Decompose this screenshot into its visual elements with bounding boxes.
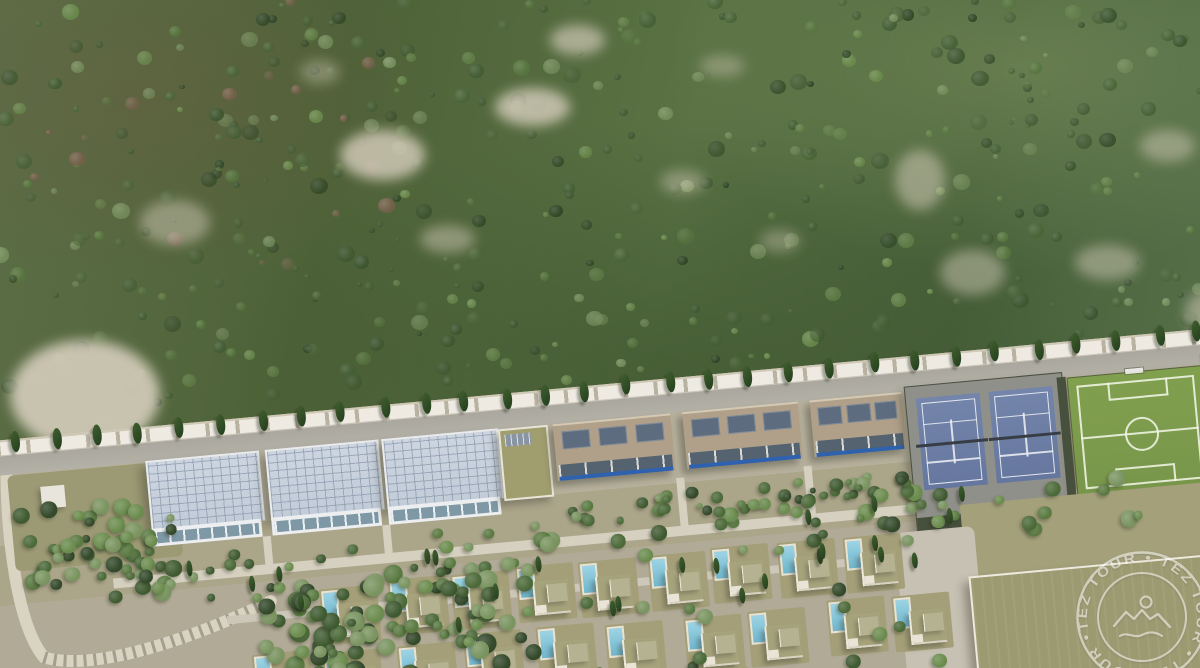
dirt-clearing xyxy=(700,55,745,77)
forest-tree xyxy=(806,148,814,155)
block-gap-shrubs-tree xyxy=(819,491,828,500)
tennis-court-1 xyxy=(916,393,988,491)
forest-tree xyxy=(215,134,222,140)
forest-tree xyxy=(467,198,474,205)
forest-tree xyxy=(1025,114,1039,126)
forest-tree xyxy=(305,28,318,39)
forest-tree xyxy=(138,287,146,295)
forest-tree xyxy=(30,173,39,181)
forest-tree xyxy=(259,260,265,265)
forest-tree xyxy=(337,246,355,262)
forest-tree xyxy=(1173,35,1187,47)
forest-tree xyxy=(941,35,958,50)
forest-tree xyxy=(970,114,988,130)
forest-tree xyxy=(443,257,449,262)
forest-tree xyxy=(248,115,259,125)
forest-tree xyxy=(125,97,139,110)
forest-tree xyxy=(579,146,592,157)
forest-tree xyxy=(1065,161,1076,171)
forest-tree xyxy=(1099,133,1115,148)
forest-tree xyxy=(1027,97,1034,103)
green-roof-service-building xyxy=(498,425,554,501)
forest-tree xyxy=(833,128,847,141)
forest-tree xyxy=(81,135,88,142)
forest-tree xyxy=(413,111,427,124)
forest-tree xyxy=(984,54,995,64)
forest-tree xyxy=(454,283,460,289)
villa-wall xyxy=(768,649,779,658)
forest-tree xyxy=(819,184,825,189)
forest-tree xyxy=(116,128,128,139)
forest-tree xyxy=(498,20,510,31)
villa-wall xyxy=(847,638,858,647)
forest-tree xyxy=(241,32,258,47)
forest-tree xyxy=(256,13,270,25)
forest-tree xyxy=(1196,88,1200,94)
forest-tree xyxy=(26,193,36,202)
forest-tree xyxy=(1012,117,1017,122)
forest-tree xyxy=(72,281,79,287)
forest-tree xyxy=(1067,130,1075,137)
forest-tree xyxy=(1161,29,1175,42)
forest-tree xyxy=(389,267,394,272)
forest-tree xyxy=(711,355,720,363)
forest-tree xyxy=(472,281,484,292)
forest-tree xyxy=(385,111,397,122)
rooftop-solar-array xyxy=(504,432,531,446)
forest-tree xyxy=(616,359,625,367)
forest-tree xyxy=(226,125,242,140)
forest-tree xyxy=(880,233,897,248)
dirt-clearing xyxy=(420,225,475,253)
forest-tree xyxy=(760,313,775,326)
villa-zone-scatter-tree xyxy=(846,654,861,668)
dirt-clearing xyxy=(940,250,1005,295)
forest-tree xyxy=(447,294,458,304)
forest-tree xyxy=(96,41,104,48)
forest-tree xyxy=(723,182,729,188)
forest-tree xyxy=(1041,89,1051,98)
forest-tree xyxy=(854,157,865,167)
garden-strip-tree xyxy=(284,562,294,571)
forest-tree xyxy=(1007,285,1022,298)
villa-wall xyxy=(913,634,924,643)
forest-tree xyxy=(543,59,560,74)
forest-tree xyxy=(968,14,976,22)
forest-tree xyxy=(1020,36,1026,42)
forest-tree xyxy=(764,353,771,359)
forest-tree xyxy=(918,6,930,17)
forest-tree xyxy=(1141,102,1156,116)
forest-tree xyxy=(69,40,83,53)
forest-tree xyxy=(304,274,310,279)
forest-tree xyxy=(1134,172,1140,178)
forest-tree xyxy=(725,132,733,139)
forest-tree xyxy=(630,203,643,215)
forest-tree xyxy=(267,366,279,377)
forest-tree xyxy=(614,248,630,262)
forest-tree xyxy=(165,350,177,360)
apartment-block-1 xyxy=(553,413,676,481)
forest-tree xyxy=(788,309,793,314)
forest-tree xyxy=(634,154,643,162)
forest-tree xyxy=(898,233,915,248)
forest-tree xyxy=(53,293,58,298)
forest-tree xyxy=(0,247,9,262)
forest-tree xyxy=(627,338,638,348)
forest-tree xyxy=(1,70,18,85)
forest-tree xyxy=(179,85,184,90)
forest-tree xyxy=(51,188,58,194)
forest-tree xyxy=(614,74,621,80)
forest-tree xyxy=(1172,273,1181,281)
forest-tree xyxy=(443,376,453,385)
forest-tree xyxy=(302,16,313,26)
forest-tree xyxy=(1090,183,1103,195)
forest-tree xyxy=(357,282,362,287)
forest-tree xyxy=(213,278,224,288)
forest-tree xyxy=(807,81,814,87)
forest-tree xyxy=(691,305,700,313)
forest-tree xyxy=(378,198,395,213)
forest-tree xyxy=(808,222,818,231)
forest-tree xyxy=(593,81,603,90)
forest-tree xyxy=(1004,12,1016,23)
forest-tree xyxy=(1100,8,1118,24)
forest-tree xyxy=(233,182,240,188)
forest-tree xyxy=(621,29,638,44)
wave-icon xyxy=(1120,632,1162,636)
forest-tree xyxy=(340,115,347,121)
forest-tree xyxy=(187,248,204,263)
forest-tree xyxy=(369,337,384,350)
villa-upper-floor xyxy=(679,571,701,591)
villa-upper-floor xyxy=(567,644,589,664)
forest-tree xyxy=(751,147,757,152)
forest-tree xyxy=(122,278,137,291)
forest-tree xyxy=(996,246,1010,259)
forest-tree xyxy=(397,0,414,11)
forest-tree xyxy=(114,238,125,248)
forest-tree xyxy=(561,375,572,385)
forest-tree xyxy=(513,60,530,76)
forest-tree xyxy=(244,350,254,359)
forest-tree xyxy=(729,357,744,370)
forest-tree xyxy=(770,80,786,94)
forest-tree xyxy=(689,317,697,325)
forest-tree xyxy=(790,146,800,155)
forest-tree xyxy=(177,107,182,112)
forest-tree xyxy=(393,195,401,202)
forest-tree xyxy=(46,130,51,135)
forest-tree xyxy=(871,153,889,169)
forest-tree xyxy=(122,180,134,191)
forest-tree xyxy=(603,145,613,154)
sun-icon xyxy=(1141,597,1152,608)
forest-tree xyxy=(376,49,385,57)
forest-tree xyxy=(366,101,378,112)
forest-tree xyxy=(825,287,842,302)
forest-tree xyxy=(242,125,258,140)
forest-tree xyxy=(1117,59,1132,73)
forest-tree xyxy=(1002,0,1017,10)
forest-tree xyxy=(397,76,407,85)
forest-tree xyxy=(23,180,32,188)
forest-tree xyxy=(997,196,1002,201)
forest-tree xyxy=(287,145,296,153)
villa-wall xyxy=(537,605,548,614)
forest-tree xyxy=(1118,286,1126,293)
forest-tree xyxy=(441,335,455,347)
forest-tree xyxy=(400,190,409,198)
forest-tree xyxy=(589,268,604,281)
forest-tree xyxy=(628,132,636,139)
forest-tree xyxy=(1065,5,1081,19)
forest-tree xyxy=(309,110,323,123)
forest-tree xyxy=(364,282,375,292)
forest-tree xyxy=(16,154,32,169)
garden-strip-tree xyxy=(994,494,1004,504)
forest-tree xyxy=(128,149,134,154)
forest-tree xyxy=(574,294,584,303)
forest-tree xyxy=(468,248,484,262)
forest-tree xyxy=(639,12,656,28)
forest-tree xyxy=(138,312,147,320)
forest-tree xyxy=(454,89,470,104)
forest-tree xyxy=(552,156,564,167)
forest-tree xyxy=(565,191,574,199)
forest-tree xyxy=(1116,20,1127,30)
forest-tree xyxy=(500,358,512,369)
dirt-clearing xyxy=(1075,245,1140,280)
forest-tree xyxy=(525,0,534,8)
forest-tree xyxy=(301,40,309,47)
forest-tree xyxy=(677,256,688,266)
forest-tree xyxy=(312,291,322,300)
forest-tree xyxy=(640,319,649,327)
villa-upper-floor xyxy=(741,564,763,584)
forest-tree xyxy=(937,85,948,95)
entry-garden-hedge-tree xyxy=(126,571,135,580)
villa-upper-floor xyxy=(636,640,658,660)
forest-tree xyxy=(1023,143,1036,155)
forest-tree xyxy=(453,263,464,273)
villa-wall xyxy=(798,580,809,589)
forest-tree xyxy=(466,363,473,369)
dirt-clearing xyxy=(1140,130,1195,162)
forest-tree xyxy=(768,212,777,220)
villa-upper-floor xyxy=(778,627,800,647)
forest-tree xyxy=(248,249,255,255)
forest-tree xyxy=(677,228,694,243)
forest-tree xyxy=(69,152,85,166)
forest-tree xyxy=(165,92,175,101)
forest-tree xyxy=(189,285,197,292)
forest-tree xyxy=(971,0,979,5)
garden-strip-tree xyxy=(409,563,418,572)
forest-tree xyxy=(226,348,237,358)
forest-tree xyxy=(563,67,581,83)
forest-tree xyxy=(838,0,846,6)
forest-tree xyxy=(268,57,279,67)
forest-tree xyxy=(1051,232,1062,242)
solar-roof-building-2 xyxy=(265,439,385,519)
villa-upper-floor xyxy=(923,612,945,632)
forest-tree xyxy=(318,35,333,48)
forest-tree xyxy=(1015,276,1022,282)
forest-tree xyxy=(486,348,500,361)
villa-upper-floor xyxy=(419,596,441,616)
forest-tree xyxy=(62,4,79,20)
stamp-inner-ring xyxy=(1098,573,1186,661)
mountain-sun-logo xyxy=(1114,597,1170,637)
forest-tree xyxy=(552,342,558,348)
forest-tree xyxy=(615,233,621,239)
forest-tree xyxy=(810,327,826,341)
block-gap-shrubs-tree xyxy=(636,497,648,509)
dirt-clearing xyxy=(895,150,945,210)
forest-tree xyxy=(1103,78,1117,91)
forest-tree xyxy=(971,71,988,87)
forest-tree xyxy=(619,109,627,117)
forest-tree xyxy=(406,53,416,62)
forest-tree xyxy=(748,354,753,359)
forest-tree xyxy=(377,222,383,227)
forest-tree xyxy=(143,88,155,98)
forest-tree xyxy=(726,311,742,326)
forest-tree xyxy=(853,174,865,185)
forest-tree xyxy=(472,215,485,227)
entry-garden-hedge-tree xyxy=(166,513,175,522)
dirt-clearing xyxy=(495,88,570,126)
forest-tree xyxy=(467,312,482,325)
forest-tree xyxy=(295,153,310,166)
forest-tree xyxy=(417,332,422,337)
forest-tree xyxy=(1076,134,1092,149)
forest-tree xyxy=(1024,81,1032,88)
forest-tree xyxy=(586,260,594,267)
forest-tree xyxy=(1029,62,1042,74)
forest-tree xyxy=(332,210,340,217)
forest-tree xyxy=(805,21,817,32)
tez-tour-watermark: TEZ TOUR • TEZ TOUR • TEZ TOUR • xyxy=(1067,542,1200,668)
garden-strip-tree xyxy=(483,528,494,539)
forest-tree xyxy=(852,11,862,20)
forest-tree xyxy=(176,44,184,51)
football-pitch xyxy=(1067,365,1200,499)
forest-tree xyxy=(993,154,998,159)
forest-tree xyxy=(802,195,810,202)
forest-tree xyxy=(530,346,540,355)
entry-garden-hedge-tree xyxy=(85,517,95,527)
forest-tree xyxy=(216,328,229,340)
forest-tree xyxy=(882,258,892,267)
forest-tree xyxy=(291,85,301,94)
forest-tree xyxy=(952,215,964,226)
forest-tree xyxy=(307,344,319,355)
forest-tree xyxy=(581,220,592,230)
forest-tree xyxy=(462,52,475,64)
forest-tree xyxy=(94,231,104,240)
forest-tree xyxy=(1019,73,1024,78)
villa-upper-floor xyxy=(715,635,737,655)
forest-tree xyxy=(222,88,236,101)
apartment-block-2 xyxy=(682,402,803,469)
dirt-clearing xyxy=(300,60,340,84)
forest-tree xyxy=(1112,297,1123,307)
forest-tree xyxy=(13,103,25,114)
villa-wall xyxy=(599,600,610,609)
forest-tree xyxy=(112,203,129,219)
forest-tree xyxy=(838,265,843,270)
forest-tree xyxy=(1027,223,1044,238)
forest-tree xyxy=(869,70,883,82)
forest-tree xyxy=(196,320,206,329)
forest-tree xyxy=(416,204,432,219)
dirt-clearing xyxy=(340,130,425,180)
forest-tree xyxy=(233,233,245,243)
dirt-clearing xyxy=(760,230,800,252)
forest-tree xyxy=(543,212,549,217)
forest-tree xyxy=(947,48,965,64)
dirt-clearing xyxy=(660,170,705,194)
forest-tree xyxy=(997,232,1007,241)
forest-tree xyxy=(182,374,196,387)
forest-tree xyxy=(795,124,804,132)
forest-tree xyxy=(486,130,498,141)
villa-wall xyxy=(864,576,875,585)
apartment-block-3 xyxy=(810,392,907,457)
forest-tree xyxy=(35,21,41,27)
forest-tree xyxy=(468,64,484,79)
forest-tree xyxy=(430,92,436,97)
villa-upper-floor xyxy=(874,554,896,574)
forest-tree xyxy=(233,218,244,228)
forest-tree xyxy=(72,232,87,246)
forest-tree xyxy=(169,26,181,37)
forest-tree xyxy=(395,237,401,242)
forest-tree xyxy=(710,335,722,346)
forest-tree xyxy=(266,388,280,401)
forest-tree xyxy=(758,140,766,147)
goal-top xyxy=(1125,368,1143,375)
forest-tree xyxy=(990,144,1001,154)
forest-tree xyxy=(209,108,224,121)
forest-tree xyxy=(876,314,891,328)
forest-tree xyxy=(618,17,629,27)
forest-tree xyxy=(582,0,591,5)
forest-tree xyxy=(236,302,247,312)
forest-tree xyxy=(637,366,644,372)
forest-tree xyxy=(1043,53,1048,58)
forest-tree xyxy=(549,205,563,218)
forest-tree xyxy=(926,130,933,136)
forest-tree xyxy=(213,341,226,353)
forest-tree xyxy=(953,298,961,305)
solar-roof-building-1 xyxy=(145,451,265,531)
forest-tree xyxy=(263,42,274,52)
forest-tree xyxy=(478,98,486,105)
forest-tree xyxy=(1008,68,1015,74)
forest-tree xyxy=(356,352,371,365)
block-gap-shrubs-tree xyxy=(809,487,816,493)
villa-upper-floor xyxy=(547,583,569,603)
forest-tree xyxy=(9,275,18,283)
tennis-court-2 xyxy=(988,386,1060,484)
forest-tree xyxy=(310,178,328,194)
forest-tree xyxy=(1146,47,1158,57)
forest-tree xyxy=(279,3,284,8)
